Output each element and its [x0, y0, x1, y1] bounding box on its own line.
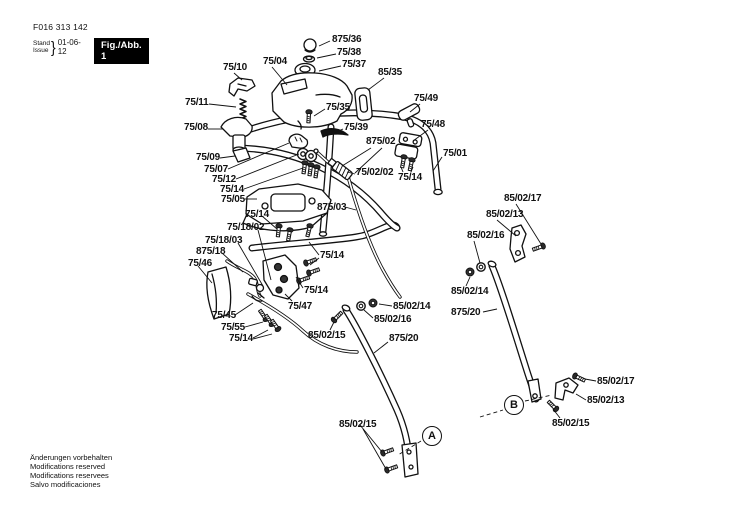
revision-labels: Stand Issue — [33, 40, 50, 54]
part-label: 875/20 — [451, 308, 480, 318]
leader-line — [483, 309, 497, 312]
revision-row: Stand Issue } 01-06-12 — [33, 38, 88, 56]
callout-a: A — [422, 426, 442, 446]
part-label: 75/35 — [326, 103, 350, 113]
leader-line — [319, 41, 330, 46]
stand-label: Stand — [33, 40, 50, 47]
leader-line — [245, 322, 263, 327]
figure-number-badge: Fig./Abb. 1 — [94, 38, 149, 64]
notice-line-fr: Modifications reservees — [30, 471, 112, 480]
leader-line — [209, 104, 236, 107]
part-label: 85/02/16 — [374, 315, 411, 325]
part-label: 75/01 — [443, 149, 467, 159]
leader-line — [235, 303, 253, 315]
part-label: 75/18/02 — [227, 223, 264, 233]
exploded-view-drawing — [0, 0, 730, 516]
part-label: 75/05 — [221, 195, 245, 205]
part-label: 875/20 — [389, 334, 418, 344]
leader-line — [363, 429, 386, 469]
part-label: 85/02/16 — [467, 231, 504, 241]
part-label: 75/37 — [342, 60, 366, 70]
leader-line — [319, 66, 341, 71]
part-label: 85/02/13 — [587, 396, 624, 406]
part-label: 75/46 — [188, 259, 212, 269]
leader-line — [368, 78, 384, 90]
part-label: 875/36 — [332, 35, 361, 45]
leader-line — [379, 304, 392, 306]
part-label: 75/14 — [245, 210, 269, 220]
part-label: 85/02/17 — [504, 194, 541, 204]
issue-label: Issue — [33, 47, 50, 54]
drawing-header: F016 313 142 Stand Issue } 01-06-12 Fig.… — [33, 22, 88, 32]
part-label: 75/10 — [223, 63, 247, 73]
part-label: 85/02/14 — [393, 302, 430, 312]
notice-line-en: Modifications reserved — [30, 462, 112, 471]
notice-line-de: Änderungen vorbehalten — [30, 453, 112, 462]
part-label: 75/11 — [185, 98, 208, 108]
leader-line — [345, 207, 356, 210]
part-label: 75/39 — [344, 123, 368, 133]
part-label: 75/38 — [337, 48, 361, 58]
part-label: 85/02/17 — [597, 377, 634, 387]
part-label: 75/14 — [229, 334, 253, 344]
part-label: 75/55 — [221, 323, 245, 333]
parts-diagram-page: F016 313 142 Stand Issue } 01-06-12 Fig.… — [0, 0, 730, 516]
leader-line — [342, 148, 371, 166]
brace-glyph: } — [51, 38, 56, 56]
part-label: 75/14 — [320, 251, 344, 261]
leader-line — [576, 394, 586, 400]
part-label: 75/08 — [184, 123, 208, 133]
leader-line — [374, 342, 388, 353]
legal-notice: Änderungen vorbehalten Modifications res… — [30, 453, 112, 489]
part-label: 85/35 — [378, 68, 402, 78]
notice-line-es: Salvo modificaciones — [30, 480, 112, 489]
callout-dash-line — [480, 410, 503, 417]
part-label: 875/03 — [317, 203, 346, 213]
part-label: 875/02 — [366, 137, 395, 147]
part-label: 75/47 — [288, 302, 312, 312]
part-label: 85/02/15 — [552, 419, 589, 429]
callout-b: B — [504, 395, 524, 415]
part-label: 75/09 — [196, 153, 220, 163]
document-number: F016 313 142 — [33, 22, 88, 32]
leader-line — [585, 379, 596, 381]
part-label: 75/14 — [304, 286, 328, 296]
leader-line — [220, 156, 235, 158]
leader-line — [317, 54, 336, 58]
leader-line — [330, 322, 334, 330]
part-label: 85/02/14 — [451, 287, 488, 297]
part-label: 85/02/15 — [339, 420, 376, 430]
part-label: 75/49 — [414, 94, 438, 104]
part-label: 75/14 — [398, 173, 422, 183]
part-label: 85/02/15 — [308, 331, 345, 341]
leader-line — [466, 277, 470, 286]
leader-line — [474, 241, 480, 263]
part-label: 85/02/13 — [486, 210, 523, 220]
part-label: 75/48 — [421, 120, 445, 130]
part-label: 75/04 — [263, 57, 287, 67]
part-label: 875/18 — [196, 247, 225, 257]
part-label: 75/18/03 — [205, 236, 242, 246]
leader-line — [364, 310, 373, 318]
part-label: 75/02/02 — [356, 168, 393, 178]
drawing-art — [207, 39, 586, 477]
part-label: 75/45 — [212, 311, 236, 321]
issue-date: 01-06-12 — [58, 38, 88, 56]
